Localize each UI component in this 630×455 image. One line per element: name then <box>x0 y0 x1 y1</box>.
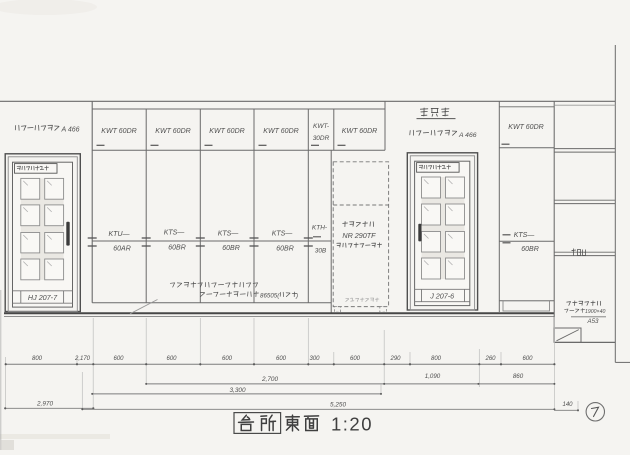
svg-text:KTS—: KTS— <box>218 231 240 238</box>
svg-text:60AR: 60AR <box>113 246 131 253</box>
svg-text:KTU—: KTU— <box>109 231 131 238</box>
svg-text:3,300: 3,300 <box>230 387 246 394</box>
svg-text:2,970: 2,970 <box>36 400 53 407</box>
svg-text:86505(: 86505( <box>260 293 280 300</box>
svg-text:600: 600 <box>522 356 533 362</box>
svg-text:600: 600 <box>350 356 361 362</box>
svg-text:KWT-: KWT- <box>313 123 330 130</box>
svg-text:): ) <box>295 293 298 300</box>
svg-text:HJ 207-7: HJ 207-7 <box>28 293 58 302</box>
svg-text:140: 140 <box>562 402 573 408</box>
svg-text:KWT 60DR: KWT 60DR <box>209 128 244 135</box>
svg-text:860: 860 <box>513 373 524 380</box>
svg-text:A53: A53 <box>586 318 599 325</box>
svg-text:600: 600 <box>113 356 124 362</box>
svg-text:A 466: A 466 <box>61 127 80 134</box>
svg-text:600: 600 <box>276 356 287 362</box>
svg-text:1:20: 1:20 <box>331 414 373 435</box>
svg-text:KWT 60DR: KWT 60DR <box>101 128 136 135</box>
svg-text:NR 290TF: NR 290TF <box>342 231 376 240</box>
svg-text:J 207-6: J 207-6 <box>429 291 454 300</box>
svg-text:600: 600 <box>222 356 233 362</box>
svg-text:60BR: 60BR <box>168 245 186 252</box>
svg-text:KWT 60DR: KWT 60DR <box>342 128 377 135</box>
svg-text:800: 800 <box>431 356 442 362</box>
svg-text:KWT 60DR: KWT 60DR <box>155 128 190 135</box>
svg-text:2,700: 2,700 <box>261 376 278 383</box>
svg-text:300: 300 <box>309 356 320 362</box>
svg-text:KWT 60DR: KWT 60DR <box>263 128 298 135</box>
svg-text:800: 800 <box>32 356 43 362</box>
svg-text:600: 600 <box>166 356 177 362</box>
svg-text:60BR: 60BR <box>222 245 240 252</box>
svg-text:KTS—: KTS— <box>514 232 536 239</box>
svg-text:30DR: 30DR <box>313 135 330 142</box>
svg-text:KTS—: KTS— <box>272 231 294 238</box>
svg-text:KTH-: KTH- <box>312 225 328 232</box>
svg-text:1,090: 1,090 <box>425 373 441 380</box>
svg-text:30B: 30B <box>315 248 327 255</box>
svg-text:1900×40: 1900×40 <box>585 309 605 315</box>
svg-text:A 466: A 466 <box>458 132 477 139</box>
svg-text:260: 260 <box>484 356 496 362</box>
svg-text:5,250: 5,250 <box>330 401 346 408</box>
svg-text:60BR: 60BR <box>521 246 539 253</box>
svg-text:60BR: 60BR <box>276 246 294 253</box>
svg-text:290: 290 <box>389 356 401 362</box>
svg-text:KTS—: KTS— <box>164 230 186 237</box>
svg-text:KWT 60DR: KWT 60DR <box>508 124 543 131</box>
svg-text:2,170: 2,170 <box>74 356 91 362</box>
